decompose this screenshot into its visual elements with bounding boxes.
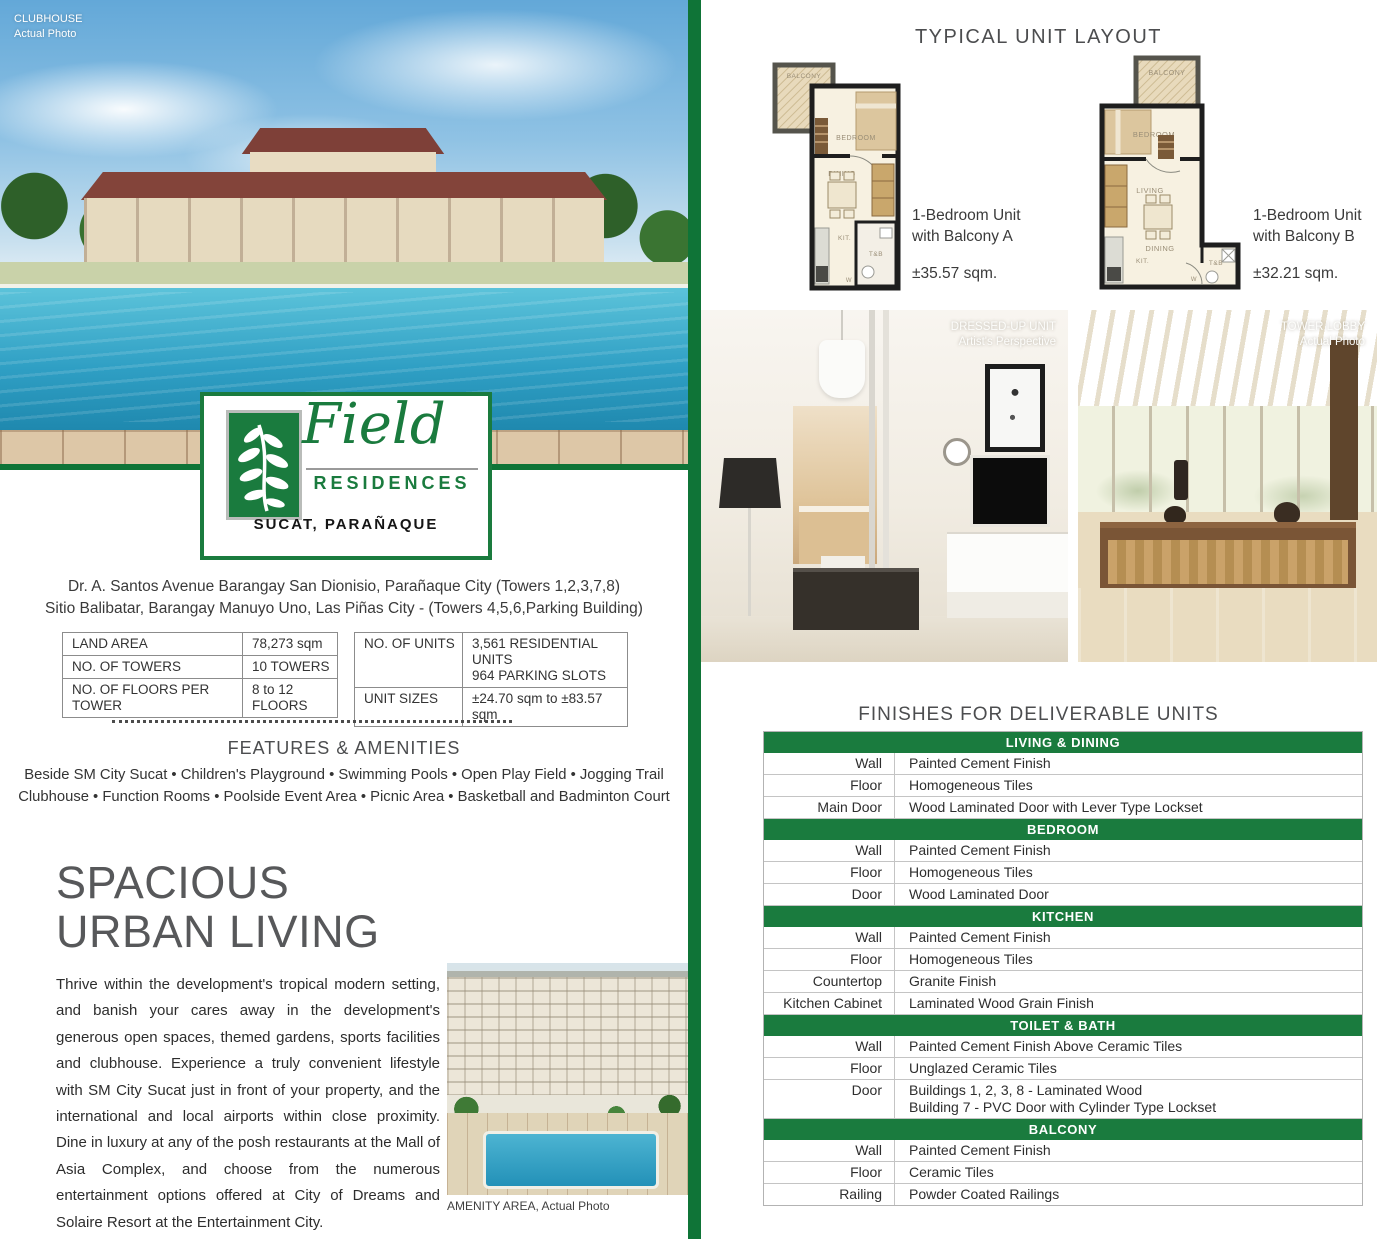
plan-a-kitchen-label: KIT. [838,235,851,242]
plan-a-tb-label: T&B [869,251,883,258]
plan-a-bedroom-label: BEDROOM [836,135,876,142]
spec-value-line: 3,561 RESIDENTIAL UNITS [472,636,621,668]
finishes-value-line: Painted Cement Finish [909,755,1362,772]
plan-b-kitchen-label: KIT. [1136,258,1149,265]
spec-table-right: NO. OF UNITS3,561 RESIDENTIAL UNITS964 P… [354,632,628,727]
headline: SPACIOUS URBAN LIVING [56,858,380,956]
unit-a-area: ±35.57 sqm. [912,263,1021,284]
lamp-cord [841,310,843,342]
finishes-value-line: Building 7 - PVC Door with Cylinder Type… [909,1099,1362,1116]
finishes-section-header: KITCHEN [764,906,1362,927]
finishes-row-value: Unglazed Ceramic Tiles [895,1058,1362,1079]
finishes-row-value: Painted Cement Finish [895,840,1362,861]
unit-b-label: 1-Bedroom Unit with Balcony B ±32.21 sqm… [1253,205,1362,284]
finishes-row-label: Main Door [764,797,895,818]
address-block: Dr. A. Santos Avenue Barangay San Dionis… [0,576,688,620]
finishes-row-value: Wood Laminated Door with Lever Type Lock… [895,797,1362,818]
finishes-row: Kitchen CabinetLaminated Wood Grain Fini… [764,993,1362,1015]
features-line1: Beside SM City Sucat • Children's Playgr… [0,764,688,786]
dressed-up-unit-label: DRESSED-UP UNIT Artist's Perspective [951,320,1056,350]
spec-value-line: ±24.70 sqm to ±83.57 sqm [472,691,621,723]
amenity-photo-caption: AMENITY AREA, Actual Photo [447,1199,689,1213]
plan-b-dining-label: DINING [1145,244,1174,253]
clubhouse-building [84,198,604,266]
sideboard [947,532,1068,618]
dressed-up-unit-photo: DRESSED-UP UNIT Artist's Perspective [701,310,1068,662]
finishes-value-line: Ceramic Tiles [909,1164,1362,1181]
finishes-row-value: Ceramic Tiles [895,1162,1362,1183]
finishes-row-label: Wall [764,1036,895,1057]
finishes-row-label: Floor [764,949,895,970]
finishes-table: LIVING & DININGWallPainted Cement Finish… [763,731,1363,1206]
finishes-row: WallPainted Cement Finish [764,1140,1362,1162]
unit-b-area: ±32.21 sqm. [1253,263,1362,284]
finishes-section-header: BALCONY [764,1119,1362,1140]
finishes-value-line: Painted Cement Finish Above Ceramic Tile… [909,1038,1362,1055]
headline-line1: SPACIOUS [56,858,380,907]
finishes-title: FINISHES FOR DELIVERABLE UNITS [700,704,1377,726]
tower-lobby-label-line2: Actual Photo [1281,335,1365,350]
finishes-row: WallPainted Cement Finish [764,927,1362,949]
wall-clock [943,438,971,466]
leaf-icon [226,410,302,520]
spec-table-left: LAND AREA78,273 sqmNO. OF TOWERS10 TOWER… [62,632,338,718]
finishes-row-label: Wall [764,753,895,774]
finishes-value-line: Wood Laminated Door with Lever Type Lock… [909,799,1362,816]
spec-row: LAND AREA78,273 sqm [63,633,337,655]
finishes-section-header: TOILET & BATH [764,1015,1362,1036]
finishes-row-label: Kitchen Cabinet [764,993,895,1014]
finishes-row-label: Floor [764,1162,895,1183]
spec-row-value: 10 TOWERS [242,656,337,678]
plan-b-tb-label: T&B [1209,260,1223,267]
unit-a-label: 1-Bedroom Unit with Balcony A ±35.57 sqm… [912,205,1021,284]
finishes-row: FloorCeramic Tiles [764,1162,1362,1184]
spec-row: NO. OF FLOORS PER TOWER8 to 12 FLOORS [63,678,337,717]
finishes-value-line: Laminated Wood Grain Finish [909,995,1362,1012]
spec-value-line: 10 TOWERS [252,659,331,675]
finishes-row-value: Laminated Wood Grain Finish [895,993,1362,1014]
finishes-row-value: Painted Cement Finish [895,927,1362,948]
finishes-value-line: Painted Cement Finish [909,929,1362,946]
coffee-table [793,568,919,630]
spec-row-label: NO. OF UNITS [355,633,462,687]
finishes-value-line: Homogeneous Tiles [909,864,1362,881]
finishes-value-line: Granite Finish [909,973,1362,990]
finishes-value-line: Powder Coated Railings [909,1186,1362,1203]
features-list: Beside SM City Sucat • Children's Playgr… [0,764,688,808]
finishes-value-line: Painted Cement Finish [909,1142,1362,1159]
logo-name: Field [302,392,482,457]
finishes-value-line: Homogeneous Tiles [909,951,1362,968]
unit-a-name-line1: 1-Bedroom Unit [912,205,1021,226]
green-divider [688,0,701,1239]
finishes-value-line: Painted Cement Finish [909,842,1362,859]
clubhouse-roof [228,128,458,154]
clubhouse-caption-line2: Actual Photo [14,27,82,42]
finishes-row-label: Wall [764,840,895,861]
finishes-row-value: Powder Coated Railings [895,1184,1362,1205]
plan-b-washer-label: W [1191,277,1197,283]
finishes-row: WallPainted Cement Finish Above Ceramic … [764,1036,1362,1058]
finishes-value-line: Buildings 1, 2, 3, 8 - Laminated Wood [909,1082,1362,1099]
plan-b-living-label: LIVING [1136,186,1164,195]
finishes-row-label: Door [764,1080,895,1118]
unit-b-name-line2: with Balcony B [1253,226,1362,247]
brochure-page: CLUBHOUSE Actual Photo Field RESIDENCES … [0,0,1377,1239]
finishes-row-label: Railing [764,1184,895,1205]
table-lamp [1174,460,1188,500]
spec-row: NO. OF UNITS3,561 RESIDENTIAL UNITS964 P… [355,633,627,687]
tower-lobby-photo: TOWER LOBBY Actual Photo [1078,310,1377,662]
vase [1274,502,1300,524]
finishes-row-label: Floor [764,775,895,796]
spec-row-label: NO. OF TOWERS [63,656,242,678]
spec-row-value: 78,273 sqm [242,633,337,655]
wall-art [985,364,1045,452]
finishes-row-value: Painted Cement Finish [895,753,1362,774]
spec-row-label: NO. OF FLOORS PER TOWER [63,679,242,717]
finishes-value-line: Wood Laminated Door [909,886,1362,903]
wood-pillar [1330,340,1358,520]
spec-value-line: 964 PARKING SLOTS [472,668,621,684]
dressed-up-unit-label-line1: DRESSED-UP UNIT [951,320,1056,335]
finishes-value-line: Homogeneous Tiles [909,777,1362,794]
clubhouse-roof-main [70,172,618,200]
clubhouse-caption: CLUBHOUSE Actual Photo [14,12,82,42]
features-title: FEATURES & AMENITIES [0,738,688,759]
dressed-up-unit-label-line2: Artist's Perspective [951,335,1056,350]
finishes-row-value: Painted Cement Finish Above Ceramic Tile… [895,1036,1362,1057]
plan-a-washer-label: W [846,278,852,284]
finishes-value-line: Unglazed Ceramic Tiles [909,1060,1362,1077]
finishes-row-label: Floor [764,1058,895,1079]
finishes-row: Main DoorWood Laminated Door with Lever … [764,797,1362,819]
finishes-row: FloorUnglazed Ceramic Tiles [764,1058,1362,1080]
address-line1: Dr. A. Santos Avenue Barangay San Dionis… [0,576,688,598]
finishes-row: RailingPowder Coated Railings [764,1184,1362,1205]
floor-lamp-pole [748,508,751,618]
finishes-row-label: Wall [764,1140,895,1161]
desk-weave-panel [1108,540,1348,584]
lobby-floor [1078,588,1377,662]
television [973,458,1047,524]
tower-lobby-label-line1: TOWER LOBBY [1281,320,1365,335]
field-residences-logo: Field RESIDENCES SUCAT, PARAÑAQUE [200,392,492,560]
plan-a-balcony-label: BALCONY [787,73,822,80]
finishes-row-value: Homogeneous Tiles [895,949,1362,970]
floorplan-b: BALCONY BEDROOM LIVING DINING KIT. [1098,53,1242,296]
finishes-row: DoorBuildings 1, 2, 3, 8 - Laminated Woo… [764,1080,1362,1119]
spec-row-label: LAND AREA [63,633,242,655]
spec-value-line: 78,273 sqm [252,636,331,652]
finishes-section-header: BEDROOM [764,819,1362,840]
unit-layout-title: TYPICAL UNIT LAYOUT [700,26,1377,49]
finishes-row-label: Door [764,884,895,905]
finishes-row-label: Floor [764,862,895,883]
plan-b-balcony-label: BALCONY [1149,70,1186,77]
finishes-row: DoorWood Laminated Door [764,884,1362,906]
spec-row: NO. OF TOWERS10 TOWERS [63,655,337,678]
finishes-row-value: Granite Finish [895,971,1362,992]
tower-lobby-label: TOWER LOBBY Actual Photo [1281,320,1365,350]
finishes-row: FloorHomogeneous Tiles [764,862,1362,884]
finishes-row: CountertopGranite Finish [764,971,1362,993]
clubhouse-caption-line1: CLUBHOUSE [14,12,82,27]
finishes-row: FloorHomogeneous Tiles [764,949,1362,971]
finishes-section-header: LIVING & DINING [764,732,1362,753]
headline-line2: URBAN LIVING [56,907,380,956]
finishes-row-value: Homogeneous Tiles [895,775,1362,796]
lawn [0,262,688,286]
finishes-row: FloorHomogeneous Tiles [764,775,1362,797]
finishes-row-value: Wood Laminated Door [895,884,1362,905]
swimming-pool [483,1131,659,1189]
spec-row-value: 8 to 12 FLOORS [242,679,337,717]
logo-location: SUCAT, PARAÑAQUE [204,516,488,533]
finishes-row-label: Wall [764,927,895,948]
features-line2: Clubhouse • Function Rooms • Poolside Ev… [0,786,688,808]
pendant-lamp [819,340,865,398]
dotted-divider [112,720,512,723]
unit-b-name-line1: 1-Bedroom Unit [1253,205,1362,226]
floorplan-a: BALCONY BEDROOM DINING KIT. [770,60,902,297]
amenity-photo [447,963,689,1195]
finishes-row-label: Countertop [764,971,895,992]
finishes-row: WallPainted Cement Finish [764,840,1362,862]
finishes-row-value: Painted Cement Finish [895,1140,1362,1161]
body-copy: Thrive within the development's tropical… [56,972,440,1236]
logo-subname: RESIDENCES [306,468,478,494]
spec-value-line: 8 to 12 FLOORS [252,682,331,714]
spec-row-value: 3,561 RESIDENTIAL UNITS964 PARKING SLOTS [462,633,627,687]
finishes-row-value: Buildings 1, 2, 3, 8 - Laminated WoodBui… [895,1080,1362,1118]
finishes-row-value: Homogeneous Tiles [895,862,1362,883]
floor-lamp [719,458,781,508]
address-line2: Sitio Balibatar, Barangay Manuyo Uno, La… [0,598,688,620]
unit-a-name-line2: with Balcony A [912,226,1021,247]
finishes-row: WallPainted Cement Finish [764,753,1362,775]
